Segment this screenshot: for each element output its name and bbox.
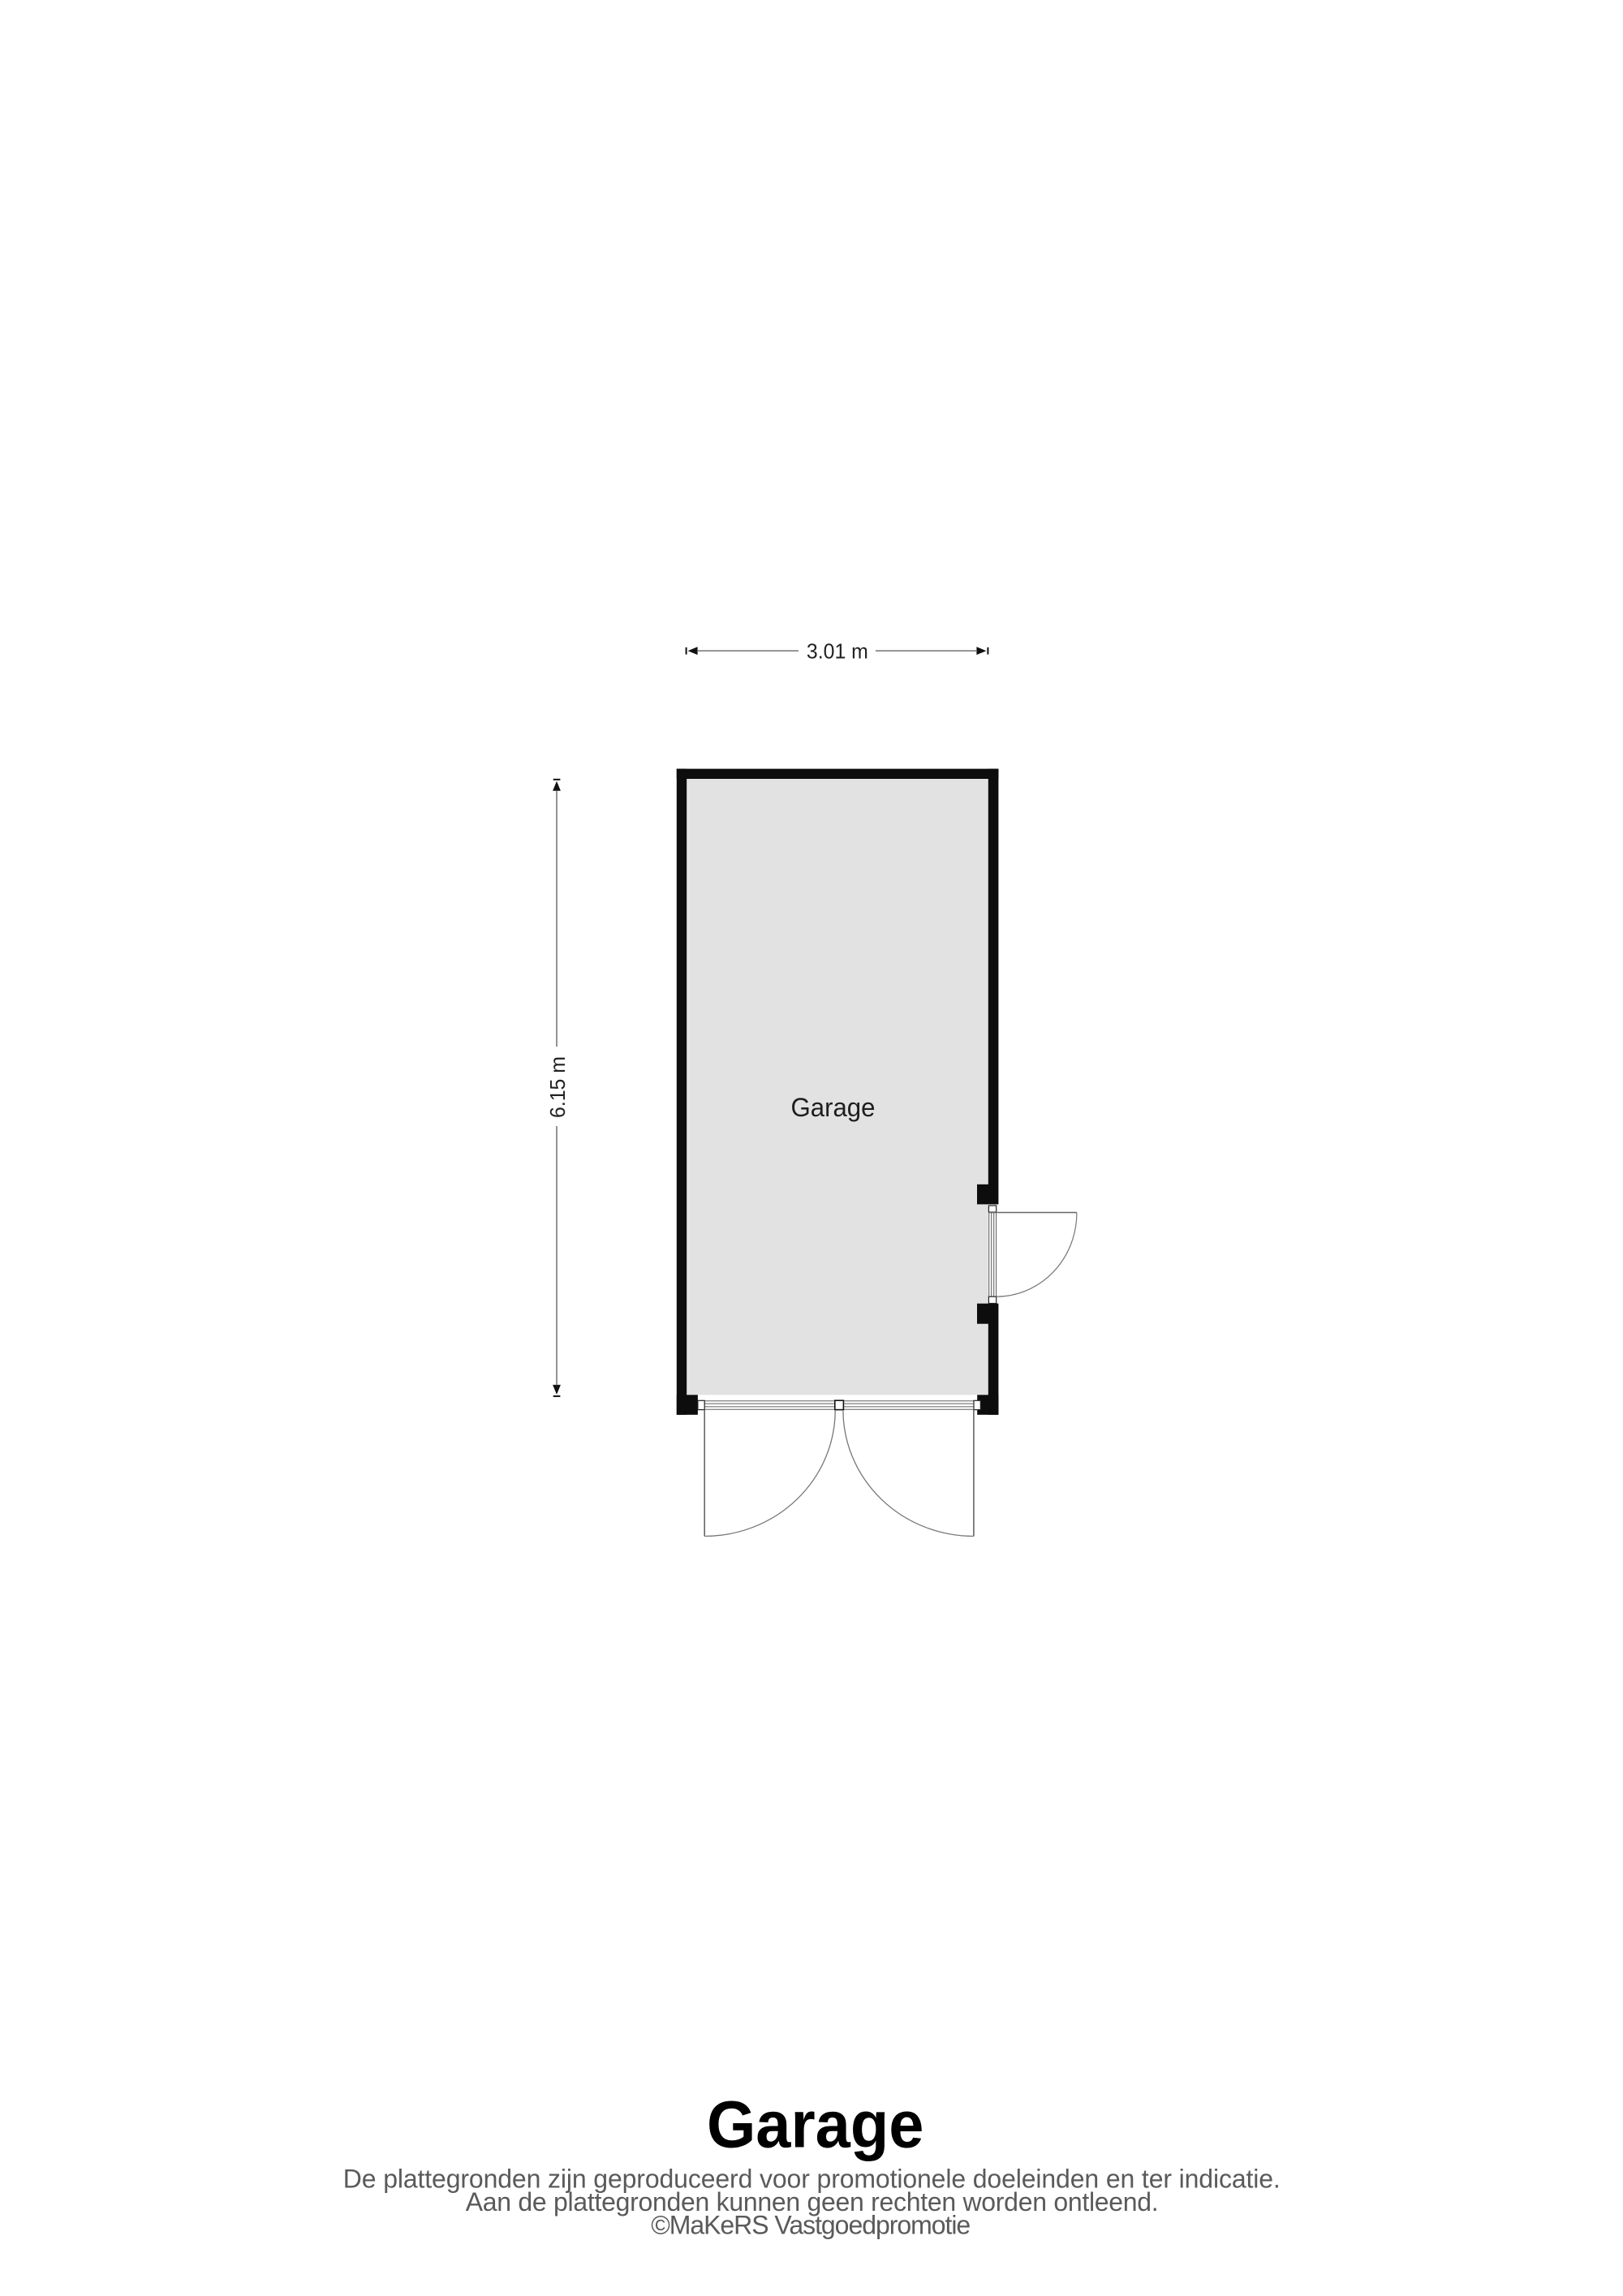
svg-text:6.15 m: 6.15 m [547,1056,570,1118]
svg-text:©MaKeRS Vastgoedpromotie: ©MaKeRS Vastgoedpromotie [651,2211,971,2240]
svg-text:3.01 m: 3.01 m [807,640,868,663]
svg-text:Garage: Garage [707,2088,924,2162]
svg-text:Garage: Garage [791,1093,876,1122]
